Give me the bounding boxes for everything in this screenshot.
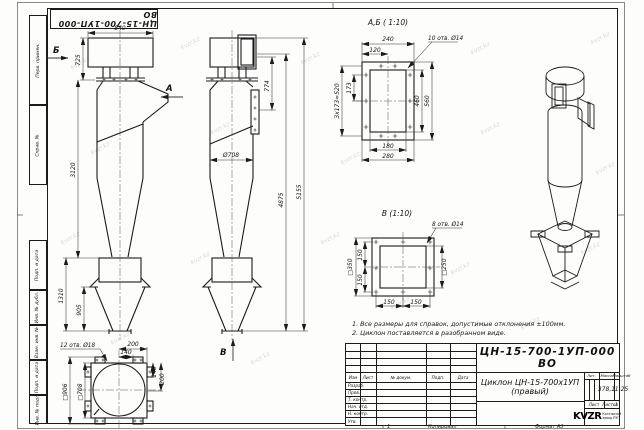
dim-280: 280	[382, 153, 394, 160]
dim-5155: 5155	[296, 184, 303, 199]
dim-173: 173	[346, 82, 353, 94]
title-block: Изм Лист № докум. Подп. Дата Разраб. Про…	[345, 343, 620, 426]
dim-150-l1: 150	[357, 249, 364, 261]
row-utv: Утв.	[346, 417, 378, 425]
view-label-a: А	[165, 84, 173, 94]
detail-ab-dim-lines	[340, 42, 458, 162]
footer-number: 1	[387, 424, 390, 430]
fold-marks	[17, 3, 624, 215]
lit-header: Лит.	[584, 372, 599, 379]
side-view-dim-lines	[210, 38, 308, 361]
dim-1310: 1310	[58, 288, 65, 303]
col-list: Лист	[360, 372, 376, 382]
bottom-view-centerlines	[78, 350, 160, 428]
row-prov: Пров.	[346, 389, 378, 396]
dim-520: 3х173=520	[334, 83, 341, 118]
dim-905: 905	[76, 304, 83, 316]
dim-150-b2: 150	[410, 299, 422, 306]
view-label-v: В	[220, 348, 226, 358]
col-doc: № докум.	[376, 372, 426, 382]
isometric-view	[531, 67, 599, 289]
side-view-bolt-marks	[211, 78, 257, 132]
row-nachotd: Нач. отд.	[346, 403, 378, 410]
mass-value: 378,1	[599, 379, 614, 400]
footer-copied: Копировал	[428, 424, 457, 430]
dim-3120: 3120	[70, 162, 77, 177]
logo-text: KVZR	[573, 411, 601, 422]
front-view-outline	[88, 38, 168, 334]
detail-ab-title: А,Б ( 1:10)	[367, 18, 408, 27]
row-nkontr: Н. контр.	[346, 410, 378, 417]
dim-150-l2: 150	[357, 274, 364, 286]
dim-200-right: 200	[159, 373, 166, 385]
dim-140-right: 140	[151, 366, 158, 378]
dim-sq708: □708	[77, 383, 84, 400]
dim-774: 774	[264, 80, 271, 92]
row-tkontr: Т. контр.	[346, 396, 378, 403]
holes-note-10: 10 отв. Ø14	[428, 35, 463, 42]
holes-note-8: 8 отв. Ø14	[432, 221, 464, 228]
col-izm: Изм	[346, 372, 360, 382]
dim-560: 560	[424, 95, 431, 107]
dim-150-b1: 150	[383, 299, 395, 306]
dim-sq906: □906	[62, 383, 69, 400]
dim-sq350: □350	[347, 258, 354, 275]
col-podp: Подп.	[426, 372, 450, 382]
dim-d708: Ø708	[222, 152, 239, 159]
dim-200-top: 200	[127, 341, 139, 348]
holes-note-12: 12 отв. Ø18	[60, 342, 95, 349]
detail-v-title: В (1:10)	[382, 209, 412, 218]
dim-240: 240	[382, 36, 394, 43]
company-logo: KVZR Котельный завод РЭП	[574, 408, 619, 425]
view-label-b: Б	[53, 46, 60, 56]
part-name-line1: Циклон ЦН-15-700х1УП	[481, 378, 579, 387]
note-line: 1. Все размеры для справок, допустимые о…	[352, 320, 612, 329]
scale-header: Масштаб	[614, 372, 629, 379]
dim-840: 840	[114, 25, 126, 32]
dim-sq250: □250	[441, 258, 448, 275]
logo-caption: Котельный завод РЭП	[602, 413, 621, 420]
bottom-view-dim-lines	[60, 347, 163, 424]
front-view-dim-lines	[47, 31, 183, 331]
part-name: Циклон ЦН-15-700х1УП (правый)	[476, 372, 584, 401]
detail-v-centerlines	[366, 232, 440, 302]
sheet-label: Лист	[584, 400, 604, 408]
dim-180: 180	[382, 143, 394, 150]
col-data: Дата	[450, 372, 476, 382]
scale-value: 1:25	[614, 379, 629, 400]
footer-format: Формат А3	[535, 424, 563, 430]
dim-140-top: 140	[120, 349, 132, 356]
sheets-value: 1	[614, 400, 619, 408]
title-block-doc-number: ЦН-15-700-1УП-000 ВО	[476, 344, 619, 372]
dim-725: 725	[75, 54, 82, 66]
drawing-notes: 1. Все размеры для справок, допустимые о…	[352, 320, 612, 338]
logo-caption-line2: завод РЭП	[602, 416, 619, 420]
dim-120: 120	[369, 47, 381, 54]
note-line: 2. Циклон поставляется в разобранном вид…	[352, 329, 612, 338]
dim-4875: 4875	[278, 192, 285, 207]
dim-460: 460	[414, 95, 421, 107]
part-name-line2: (правый)	[511, 387, 549, 396]
row-razrab: Разраб.	[346, 382, 378, 389]
